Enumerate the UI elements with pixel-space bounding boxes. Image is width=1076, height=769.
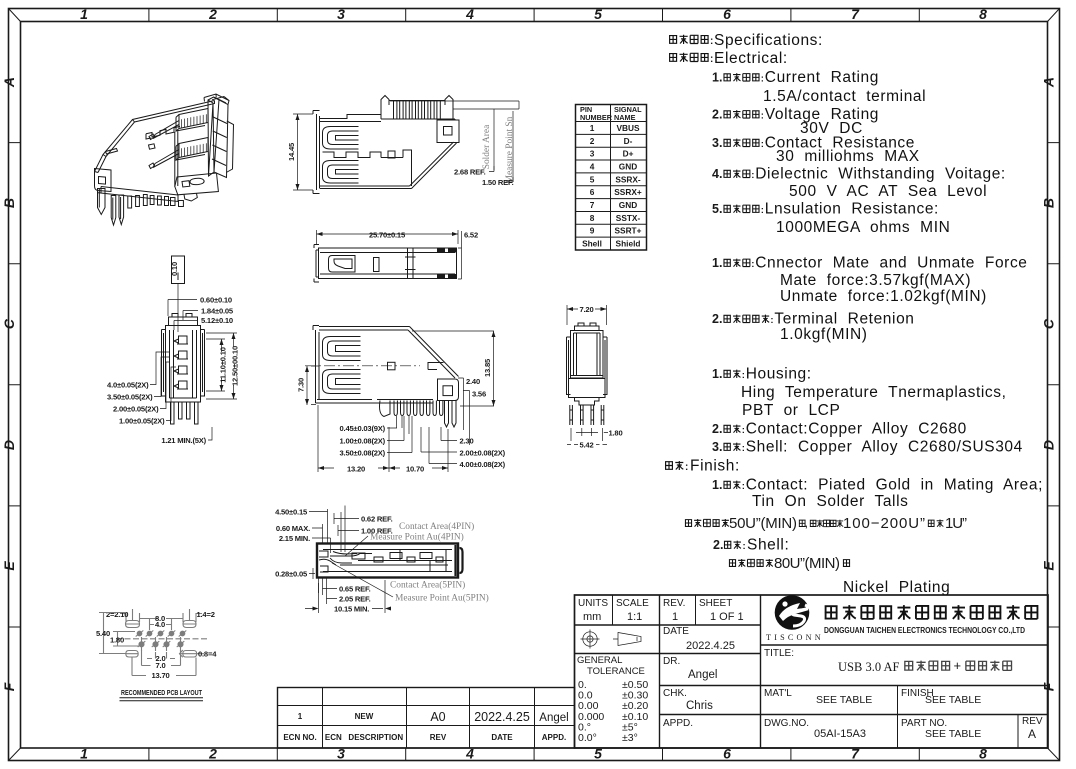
svg-text:8: 8 xyxy=(590,213,595,223)
svg-text:4: 4 xyxy=(590,162,595,172)
svg-text:4.00±0.08(2X): 4.00±0.08(2X) xyxy=(460,460,506,469)
svg-text:5: 5 xyxy=(590,174,595,184)
svg-text:Shell:: Shell: xyxy=(747,537,789,554)
svg-text:1.0kgf(MIN): 1.0kgf(MIN) xyxy=(780,326,868,343)
svg-text:1.80: 1.80 xyxy=(110,636,124,645)
svg-text::: : xyxy=(761,205,764,216)
svg-text::: : xyxy=(743,541,746,552)
svg-text:3: 3 xyxy=(590,149,595,159)
svg-text:13.85: 13.85 xyxy=(483,358,492,377)
svg-text:0.60 MAX.: 0.60 MAX. xyxy=(276,524,310,533)
svg-text:Solder Area: Solder Area xyxy=(482,124,492,169)
svg-text:PBT or LCP: PBT or LCP xyxy=(742,402,840,419)
svg-text::: : xyxy=(742,443,745,454)
svg-text:SEE TABLE: SEE TABLE xyxy=(925,694,981,706)
svg-text:7: 7 xyxy=(851,6,860,22)
svg-text:1.: 1. xyxy=(712,367,722,381)
svg-text:VBUS: VBUS xyxy=(616,123,640,133)
svg-text:Nickel Plating: Nickel Plating xyxy=(843,579,950,596)
svg-text:5: 5 xyxy=(594,6,602,22)
svg-text:2.15 MIN.: 2.15 MIN. xyxy=(279,534,310,543)
svg-text:80U”(MIN): 80U”(MIN) xyxy=(774,555,840,572)
svg-text:2022.4.25: 2022.4.25 xyxy=(474,710,530,724)
svg-text:Angel: Angel xyxy=(539,712,568,724)
svg-text:1.00±0.08(2X): 1.00±0.08(2X) xyxy=(340,437,386,446)
svg-text:4.50±0.15: 4.50±0.15 xyxy=(275,508,308,517)
svg-text:6: 6 xyxy=(723,6,731,22)
svg-text:10.70: 10.70 xyxy=(406,465,424,474)
svg-text:1.: 1. xyxy=(712,71,722,85)
svg-text:1.21 MIN.(5X): 1.21 MIN.(5X) xyxy=(161,436,206,445)
svg-text:3.: 3. xyxy=(712,440,722,454)
svg-text:DWG.NO.: DWG.NO. xyxy=(764,718,809,729)
svg-text::: : xyxy=(742,481,745,492)
svg-text:DONGGUAN TAICHEN ELECTRONICS: DONGGUAN TAICHEN ELECTRONICS TECHNOLOGY … xyxy=(824,625,1025,635)
svg-text:SEE TABLE: SEE TABLE xyxy=(925,728,981,740)
svg-text:DATE: DATE xyxy=(491,733,513,742)
svg-text:NEW: NEW xyxy=(355,712,374,721)
svg-text:C: C xyxy=(1,318,17,329)
svg-text:Dielectnic Withstanding Voit: Dielectnic Withstanding Voitage: xyxy=(755,166,1006,183)
svg-text:Measure Point Au(5PIN): Measure Point Au(5PIN) xyxy=(395,593,489,604)
svg-text:1.: 1. xyxy=(712,478,722,492)
svg-text:Finish:: Finish: xyxy=(690,458,740,475)
svg-text:1.5A/contact terminal: 1.5A/contact terminal xyxy=(763,88,926,105)
svg-text:2.00±0.08(2X): 2.00±0.08(2X) xyxy=(460,449,506,458)
svg-text:4.0±0.05(2X): 4.0±0.05(2X) xyxy=(107,381,149,390)
svg-text:2.05 REF.: 2.05 REF. xyxy=(339,595,371,604)
svg-text:5.40: 5.40 xyxy=(96,629,110,638)
svg-text:1: 1 xyxy=(298,712,303,721)
svg-text:4.0: 4.0 xyxy=(155,620,165,629)
svg-text:Terminal Retenion: Terminal Retenion xyxy=(774,311,914,328)
svg-text:TOLERANCE: TOLERANCE xyxy=(587,666,645,677)
svg-text::: : xyxy=(742,370,745,381)
svg-text:B: B xyxy=(1041,198,1057,208)
svg-text:±3°: ±3° xyxy=(622,732,638,744)
svg-text:B: B xyxy=(1,198,17,208)
svg-text:5.42: 5.42 xyxy=(580,441,594,450)
svg-text:1: 1 xyxy=(672,611,678,623)
svg-text:3.56: 3.56 xyxy=(472,390,486,399)
svg-text::: : xyxy=(761,139,764,150)
svg-text:SSTX-: SSTX- xyxy=(616,213,641,223)
svg-text:Specifications:: Specifications: xyxy=(714,32,823,49)
svg-text:REV: REV xyxy=(1022,716,1043,727)
svg-text:10.15 MIN.: 10.15 MIN. xyxy=(334,605,369,614)
svg-text:2.: 2. xyxy=(712,312,722,326)
svg-text:MAT'L: MAT'L xyxy=(764,688,792,699)
svg-text:1.4=2: 1.4=2 xyxy=(197,610,215,619)
svg-text:Hing Temperature Tnermapla: Hing Temperature Tnermaplastics, xyxy=(741,384,1007,401)
svg-text::: : xyxy=(770,315,773,326)
svg-text:7.0: 7.0 xyxy=(156,661,166,670)
svg-text:Mate force:3.57kgf(MAX): Mate force:3.57kgf(MAX) xyxy=(780,272,971,289)
svg-text:SSRX+: SSRX+ xyxy=(614,187,642,197)
svg-text:D+: D+ xyxy=(623,149,634,159)
svg-text:mm: mm xyxy=(583,611,601,623)
svg-text:SSRX-: SSRX- xyxy=(615,174,641,184)
svg-text:2: 2 xyxy=(208,6,217,22)
svg-text:5.12±0.10: 5.12±0.10 xyxy=(201,316,233,325)
svg-text:,: , xyxy=(805,519,808,529)
svg-text:APPD.: APPD. xyxy=(542,733,566,742)
svg-text:0.28±0.05: 0.28±0.05 xyxy=(275,570,308,579)
svg-text:Tin On Solder Talls: Tin On Solder Talls xyxy=(752,493,909,510)
svg-text:NAME: NAME xyxy=(614,113,636,122)
svg-text:Unmate force:1.02kgf(MIN): Unmate force:1.02kgf(MIN) xyxy=(780,288,987,305)
svg-text:4.: 4. xyxy=(712,167,722,181)
svg-text:2022.4.25: 2022.4.25 xyxy=(686,640,735,652)
svg-text:1.80: 1.80 xyxy=(609,429,623,438)
svg-text:TITLE:: TITLE: xyxy=(764,648,794,659)
svg-text:2.40: 2.40 xyxy=(466,377,480,386)
svg-text:2.: 2. xyxy=(712,108,722,122)
svg-text::: : xyxy=(742,425,745,436)
svg-text:9: 9 xyxy=(590,226,595,236)
svg-text:Contact: Piated Gold in Ma: Contact: Piated Gold in Mating Area; xyxy=(746,477,1043,494)
svg-text:5.: 5. xyxy=(712,202,722,216)
svg-text:0.45±0.03(9X): 0.45±0.03(9X) xyxy=(340,424,386,433)
svg-text:ECN NO.: ECN NO. xyxy=(283,733,316,742)
svg-text:0.62 REF.: 0.62 REF. xyxy=(361,515,393,524)
svg-text:CHK.: CHK. xyxy=(663,688,687,699)
svg-text:Shell: Copper Alloy C2680/S: Shell: Copper Alloy C2680/SUS304 xyxy=(746,439,1023,456)
svg-text:DATE: DATE xyxy=(663,626,689,637)
svg-text:A: A xyxy=(1041,77,1057,88)
svg-text:Chris: Chris xyxy=(686,700,713,712)
svg-text:8: 8 xyxy=(979,6,987,22)
svg-text:TISCONN: TISCONN xyxy=(766,633,824,642)
svg-text:1: 1 xyxy=(590,123,595,133)
svg-text:RECOMMENDED PCB LAYOUT: RECOMMENDED PCB LAYOUT xyxy=(121,690,203,697)
svg-text:0.0°: 0.0° xyxy=(578,732,597,744)
svg-text:D-: D- xyxy=(624,136,633,146)
svg-text:Shield: Shield xyxy=(616,239,641,249)
svg-text:SSRT+: SSRT+ xyxy=(615,226,642,236)
svg-text:2: 2 xyxy=(208,746,217,762)
svg-text::: : xyxy=(751,259,754,270)
svg-text:NUMBER: NUMBER xyxy=(580,113,613,122)
svg-text:2.: 2. xyxy=(712,422,722,436)
svg-text:2.30: 2.30 xyxy=(460,437,474,446)
svg-text:Measure Point Sn: Measure Point Sn xyxy=(505,116,515,183)
svg-text:13.20: 13.20 xyxy=(347,465,365,474)
svg-text:14.45: 14.45 xyxy=(287,142,296,161)
svg-text:30 milliohms MAX: 30 milliohms MAX xyxy=(776,148,920,165)
svg-text:A: A xyxy=(1028,727,1036,741)
svg-text:Angel: Angel xyxy=(688,669,717,681)
svg-text:REV.: REV. xyxy=(663,598,685,609)
svg-text:6: 6 xyxy=(590,187,595,197)
svg-text:D: D xyxy=(1041,440,1057,450)
svg-text:1: 1 xyxy=(80,6,88,22)
svg-text::: : xyxy=(761,111,764,122)
svg-text:1: 1 xyxy=(80,746,88,762)
svg-text:E: E xyxy=(1041,561,1057,571)
svg-text:E: E xyxy=(1,561,17,571)
svg-text:SEE TABLE: SEE TABLE xyxy=(816,694,872,706)
svg-text:3.: 3. xyxy=(712,136,722,150)
svg-text:13.70: 13.70 xyxy=(151,671,169,680)
svg-text:2.68 REF.: 2.68 REF. xyxy=(454,168,486,177)
svg-text:A: A xyxy=(1,77,17,88)
svg-text:ECN DESCRIPTION: ECN DESCRIPTION xyxy=(325,733,403,742)
svg-text:REV: REV xyxy=(430,733,447,742)
svg-text:3.50±0.05(2X): 3.50±0.05(2X) xyxy=(107,393,153,402)
svg-text:7.30: 7.30 xyxy=(297,378,306,392)
svg-text:2: 2 xyxy=(590,136,595,146)
svg-text:30V DC: 30V DC xyxy=(800,120,863,137)
svg-text:SCALE: SCALE xyxy=(616,598,649,609)
svg-text:Housing:: Housing: xyxy=(746,366,812,383)
svg-text:25.70±0.15: 25.70±0.15 xyxy=(369,231,406,240)
svg-text:F: F xyxy=(1,682,17,691)
svg-text::: : xyxy=(751,170,754,181)
svg-text:D: D xyxy=(1,440,17,450)
svg-text:1.84±0.05: 1.84±0.05 xyxy=(201,307,234,316)
svg-text:11.10±0.10: 11.10±0.10 xyxy=(219,347,228,383)
svg-text:1:1: 1:1 xyxy=(627,611,642,623)
svg-text::: : xyxy=(761,74,764,85)
svg-text:USB 3.0 AF: USB 3.0 AF xyxy=(838,660,900,674)
svg-text::: : xyxy=(710,54,713,65)
svg-text:4: 4 xyxy=(465,6,474,22)
svg-text::: : xyxy=(710,36,713,47)
svg-text:2.00±0.05(2X): 2.00±0.05(2X) xyxy=(113,405,159,414)
svg-text:12.50±00.10: 12.50±00.10 xyxy=(231,346,240,386)
svg-text:SHEET: SHEET xyxy=(699,598,732,609)
svg-text:6.52: 6.52 xyxy=(464,231,478,240)
svg-text:UNITS: UNITS xyxy=(578,598,608,609)
svg-text:50U”(MIN): 50U”(MIN) xyxy=(729,515,797,532)
svg-text:3: 3 xyxy=(337,6,345,22)
svg-text:Contact:Copper Alloy C2680: Contact:Copper Alloy C2680 xyxy=(746,421,967,438)
svg-text:1.00±0.05(2X): 1.00±0.05(2X) xyxy=(119,417,165,426)
svg-text:C: C xyxy=(1041,318,1057,329)
svg-text:GND: GND xyxy=(619,200,637,210)
svg-text:GENERAL: GENERAL xyxy=(577,655,622,666)
svg-text:1U”: 1U” xyxy=(945,515,967,532)
svg-text:Cnnector Mate and Unmate F: Cnnector Mate and Unmate Force xyxy=(755,255,1027,272)
svg-text:1 OF 1: 1 OF 1 xyxy=(710,611,744,623)
svg-text:A0: A0 xyxy=(430,710,445,724)
svg-text:0.8=4: 0.8=4 xyxy=(198,650,217,659)
svg-text:2=2.10: 2=2.10 xyxy=(106,610,128,619)
svg-text:1.: 1. xyxy=(712,256,722,270)
svg-text:7: 7 xyxy=(590,200,595,210)
svg-text:0.60±0.10: 0.60±0.10 xyxy=(200,296,232,305)
svg-text:3.50±0.08(2X): 3.50±0.08(2X) xyxy=(340,449,386,458)
svg-text:Contact Area(5PIN): Contact Area(5PIN) xyxy=(390,580,465,591)
svg-text:Lnsulation Resistance:: Lnsulation Resistance: xyxy=(765,201,939,218)
svg-text:0.65 REF.: 0.65 REF. xyxy=(339,585,371,594)
svg-text:1000MEGA ohms MIN: 1000MEGA ohms MIN xyxy=(776,219,950,236)
svg-text:100−200U”: 100−200U” xyxy=(843,515,925,532)
svg-text:Contact Area(4PIN): Contact Area(4PIN) xyxy=(399,521,474,532)
svg-text:Shell: Shell xyxy=(582,239,602,249)
svg-text:7.20: 7.20 xyxy=(580,305,594,314)
svg-text:Electrical:: Electrical: xyxy=(714,50,788,67)
svg-text:2.: 2. xyxy=(713,538,723,552)
svg-text::: : xyxy=(685,462,688,473)
svg-text:GND: GND xyxy=(619,162,637,172)
svg-text:05AI-15A3: 05AI-15A3 xyxy=(814,728,866,740)
svg-text:500 V AC AT Sea Levol: 500 V AC AT Sea Levol xyxy=(789,183,987,200)
svg-text:Current Rating: Current Rating xyxy=(765,69,879,86)
svg-text:1.50 REF.: 1.50 REF. xyxy=(482,178,514,187)
svg-text:+: + xyxy=(954,658,962,673)
svg-text:Measure Point Au(4PIN): Measure Point Au(4PIN) xyxy=(370,532,464,543)
svg-text:APPD.: APPD. xyxy=(663,718,693,729)
svg-text:DR.: DR. xyxy=(663,656,680,667)
